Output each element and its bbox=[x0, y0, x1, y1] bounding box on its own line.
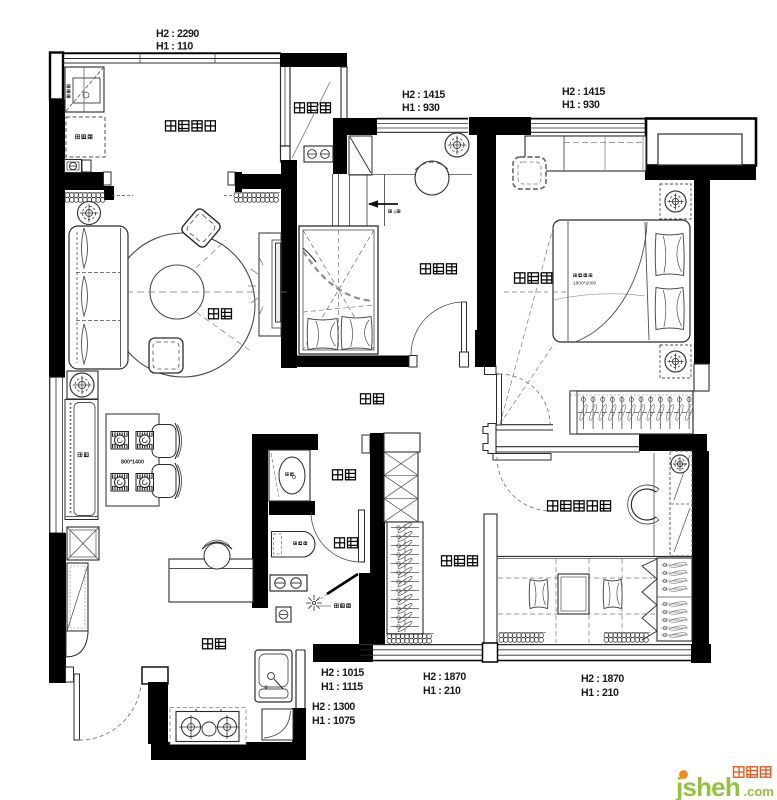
svg-text:H2 : 1870: H2 : 1870 bbox=[581, 673, 624, 685]
svg-text:H1 : 110: H1 : 110 bbox=[156, 41, 193, 53]
svg-text:.com: .com bbox=[744, 784, 774, 799]
svg-text:H1 : 930: H1 : 930 bbox=[402, 102, 440, 114]
svg-text:H2 : 1415: H2 : 1415 bbox=[562, 86, 605, 98]
svg-text:H1 : 1115: H1 : 1115 bbox=[321, 681, 363, 693]
svg-text:H2 : 1015: H2 : 1015 bbox=[321, 667, 364, 679]
svg-text:1800*2000: 1800*2000 bbox=[573, 281, 597, 287]
svg-text:H1 : 930: H1 : 930 bbox=[562, 99, 600, 111]
svg-text:H1 : 1075: H1 : 1075 bbox=[312, 715, 355, 727]
svg-text:H2 : 1415: H2 : 1415 bbox=[402, 89, 445, 101]
svg-text:H1 : 210: H1 : 210 bbox=[581, 687, 619, 699]
svg-text:H2 : 1300: H2 : 1300 bbox=[312, 701, 355, 713]
svg-text:H2 : 1870: H2 : 1870 bbox=[423, 671, 466, 683]
svg-text:6: 6 bbox=[394, 210, 397, 216]
svg-text:H2 : 2290: H2 : 2290 bbox=[156, 28, 199, 40]
svg-text:H1 : 210: H1 : 210 bbox=[423, 685, 461, 697]
svg-text:800*1400: 800*1400 bbox=[121, 460, 144, 466]
